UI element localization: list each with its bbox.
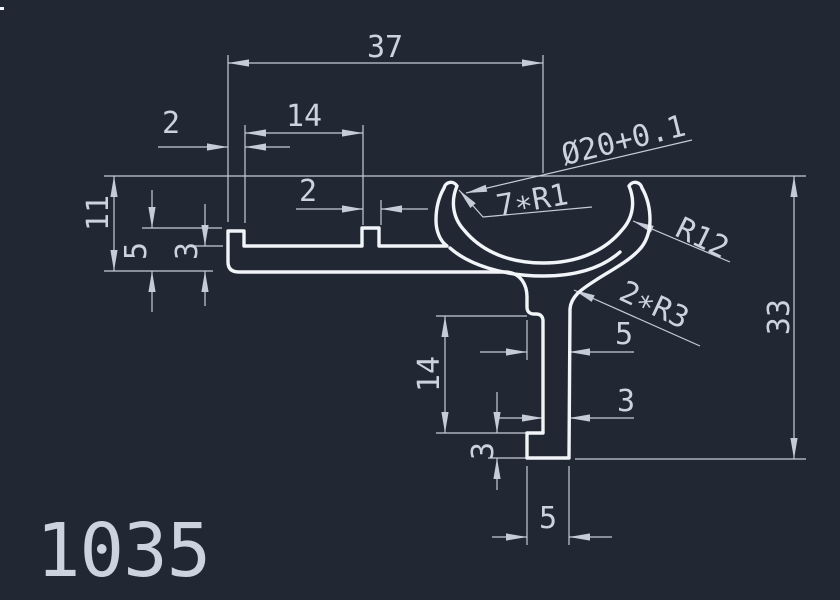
dim-label-leg-width: 3 xyxy=(617,384,635,419)
dim-label-diameter: Ø20+0.1 xyxy=(558,109,689,174)
screen-artifact-tick xyxy=(0,7,4,10)
dim-label-foot-width: 5 xyxy=(539,501,557,536)
arrowhead xyxy=(228,59,249,66)
arrowhead xyxy=(201,271,208,292)
arrowhead xyxy=(522,59,543,66)
arrowhead xyxy=(569,533,590,540)
arrowhead xyxy=(148,207,155,228)
arrowhead xyxy=(493,458,500,479)
arrowhead xyxy=(148,271,155,292)
dimension-stem-width: 5 xyxy=(480,317,634,360)
dimension-lip-width: 2 xyxy=(158,106,290,151)
dim-label-lip-width: 2 xyxy=(162,106,180,141)
arrowhead xyxy=(506,533,527,540)
dim-label-height-left: 11 xyxy=(81,195,116,231)
dim-label-foot-height: 3 xyxy=(466,442,501,460)
dimension-foot-height: 3 xyxy=(466,392,527,490)
dim-label-lip-height: 5 xyxy=(119,242,154,260)
dimension-tab-width: 2 xyxy=(296,174,428,225)
dim-label-tab-width: 2 xyxy=(299,174,317,209)
cad-drawing-canvas: 37 14 2 2 xyxy=(0,0,840,600)
dimension-stem-length: 14 xyxy=(412,316,527,433)
dim-label-stem-width: 5 xyxy=(615,317,633,352)
arrowhead xyxy=(522,414,543,421)
dimension-diameter: Ø20+0.1 xyxy=(465,109,692,197)
arrowhead xyxy=(207,143,228,150)
part-number: 1035 xyxy=(36,508,210,594)
dimension-wall-left: 3 xyxy=(170,204,223,306)
dim-label-overall-width: 37 xyxy=(367,30,403,65)
dimension-foot-width: 5 xyxy=(492,466,612,545)
arrowhead xyxy=(465,185,487,197)
dimension-fillet-radius: 2∗R3 xyxy=(573,274,700,346)
arrowhead xyxy=(493,412,500,433)
dimension-layer: 37 14 2 2 xyxy=(81,30,806,545)
arrowhead xyxy=(342,205,363,212)
dimension-leg-width: 3 xyxy=(498,384,635,422)
arrowhead xyxy=(569,348,590,355)
dim-label-slot-offset: 14 xyxy=(286,99,322,134)
arrowhead xyxy=(441,412,448,433)
arrowhead xyxy=(790,176,797,197)
dimension-tip-radius: 7∗R1 xyxy=(456,177,592,224)
dim-label-height-right: 33 xyxy=(762,299,797,335)
dim-label-stem-length: 14 xyxy=(412,356,447,392)
arrowhead xyxy=(110,250,117,271)
dim-label-wall-left: 3 xyxy=(170,242,205,260)
dim-label-outer-radius: R12 xyxy=(670,211,734,266)
arrowhead xyxy=(569,414,590,421)
arrowhead xyxy=(790,438,797,459)
arrowhead xyxy=(110,176,117,197)
arrowhead xyxy=(245,129,266,136)
arrowhead xyxy=(506,348,527,355)
arrowhead xyxy=(381,205,402,212)
arrowhead xyxy=(245,143,266,150)
arrowhead xyxy=(441,316,448,337)
arrowhead xyxy=(342,129,363,136)
